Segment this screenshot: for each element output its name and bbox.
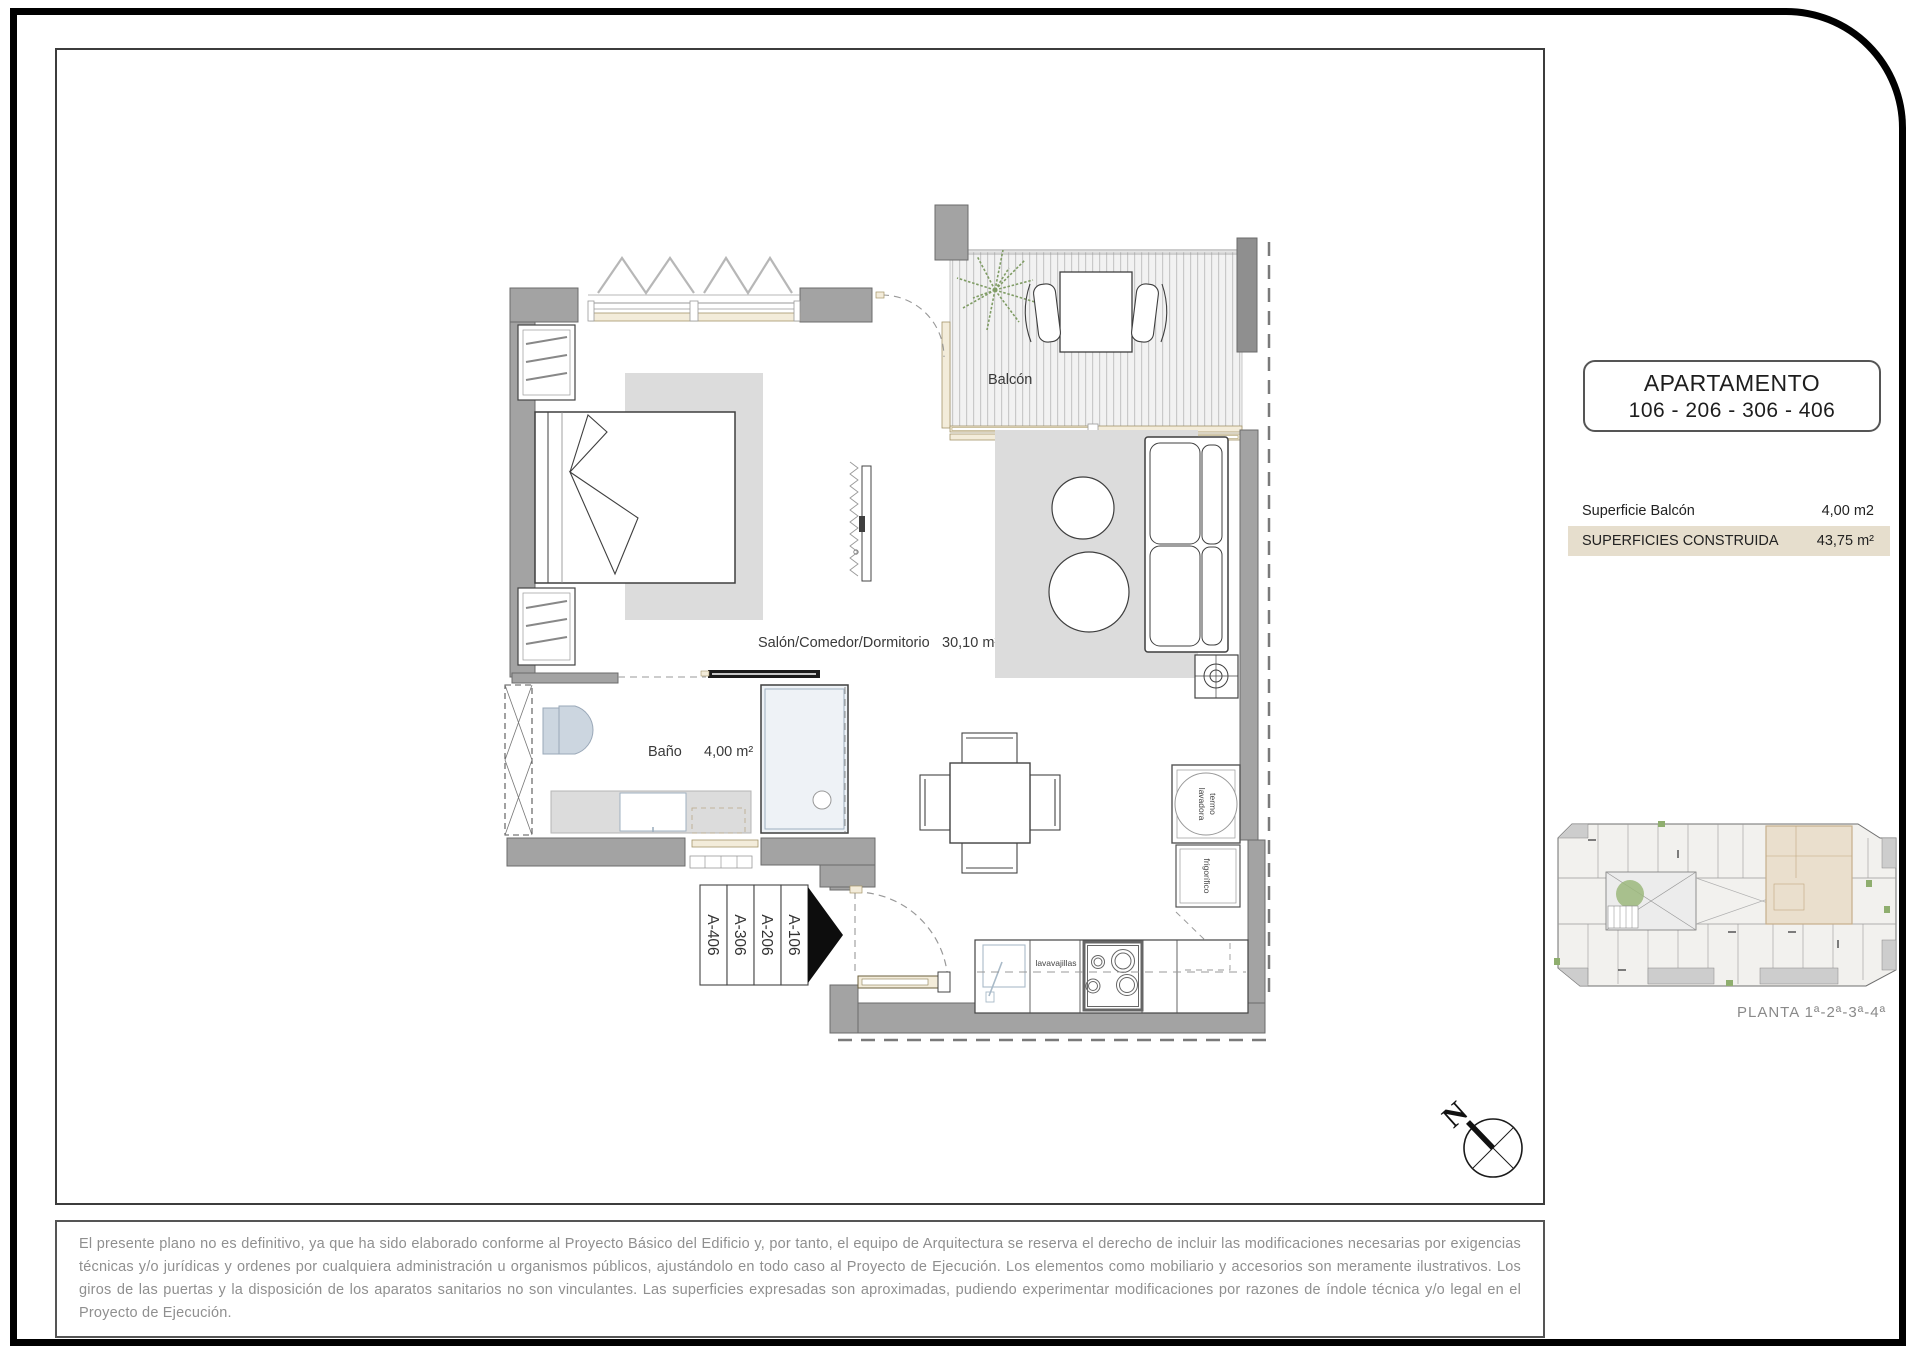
disclaimer-text: El presente plano no es definitivo, ya q… [79, 1233, 1521, 1325]
dining-table [950, 763, 1030, 843]
unit-tag: A-406 [704, 914, 721, 955]
vanity [551, 791, 751, 833]
highlighted-unit [1766, 826, 1852, 924]
key-plan-caption: PLANTA 1ª-2ª-3ª-4ª [1737, 1004, 1886, 1021]
bedroom [518, 325, 871, 665]
unit-tags: A-406 A-306 A-206 A-106 [700, 885, 843, 985]
surface-row-balcony: Superficie Balcón 4,00 m2 [1568, 496, 1890, 526]
balcony-label: Balcón [988, 372, 1032, 388]
shutter-trusses [588, 258, 800, 295]
bedroom-window [588, 258, 944, 357]
shaft [505, 685, 532, 835]
courtyard-greenery [1616, 880, 1644, 908]
kitchen-counter: lavavajillas [975, 940, 1248, 1013]
shower [761, 685, 848, 833]
coffee-table [1049, 552, 1129, 632]
apartment-units: 106 - 206 - 306 - 406 [1629, 399, 1836, 423]
dishwasher-label: lavavajillas [1035, 958, 1076, 968]
balcony-table [1025, 272, 1167, 352]
balcony-door-arc [882, 295, 944, 357]
plan-sheet: Balcón [0, 0, 1920, 1357]
sofa [1145, 437, 1228, 652]
stove [1084, 942, 1142, 1010]
unit-tag: A-306 [731, 914, 748, 955]
balcony: Balcón [935, 205, 1257, 442]
surface-balcony-value: 4,00 m2 [1822, 503, 1874, 519]
living-area [995, 430, 1238, 698]
bathroom-bottom-door [690, 840, 758, 868]
fridge-label: frigorífico [1202, 859, 1212, 894]
key-plan [1528, 820, 1900, 1002]
apartment-title-box: APARTAMENTO 106 - 206 - 306 - 406 [1583, 360, 1881, 432]
north-compass: N [1435, 1085, 1535, 1185]
living-room-area: 30,10 m² [942, 635, 999, 651]
tv-unit [850, 462, 871, 581]
wardrobe [518, 588, 575, 665]
living-room-label: Salón/Comedor/Dormitorio [758, 635, 930, 651]
surface-balcony-label: Superficie Balcón [1582, 503, 1695, 519]
bed [535, 412, 735, 583]
coffee-table [1052, 477, 1114, 539]
termo-label: termo [1208, 793, 1218, 815]
shower-drain [813, 791, 831, 809]
bathroom-sliding-door [618, 670, 820, 678]
key-plan-building [1554, 821, 1896, 986]
bath-area: 4,00 m² [704, 744, 753, 760]
wardrobe [518, 325, 575, 400]
side-table [1195, 655, 1238, 698]
north-label: N [1436, 1095, 1474, 1134]
surface-built-label: SUPERFICIES CONSTRUIDA [1582, 533, 1779, 549]
unit-tag: A-106 [785, 914, 802, 955]
dining-set [920, 733, 1060, 873]
surface-row-built: SUPERFICIES CONSTRUIDA 43,75 m² [1568, 526, 1890, 556]
entrance-arrow [808, 887, 843, 983]
toilet [543, 706, 593, 754]
surfaces-table: Superficie Balcón 4,00 m2 SUPERFICIES CO… [1568, 496, 1890, 556]
surface-built-value: 43,75 m² [1817, 533, 1874, 549]
entrance-door [850, 886, 950, 992]
floor-plan: Balcón [490, 200, 1280, 1045]
disclaimer-box: El presente plano no es definitivo, ya q… [55, 1220, 1545, 1338]
unit-tag: A-206 [758, 914, 775, 955]
bath-label: Baño [648, 744, 682, 760]
apartment-title: APARTAMENTO [1644, 370, 1820, 397]
lavadora-label: lavadora [1197, 788, 1207, 821]
